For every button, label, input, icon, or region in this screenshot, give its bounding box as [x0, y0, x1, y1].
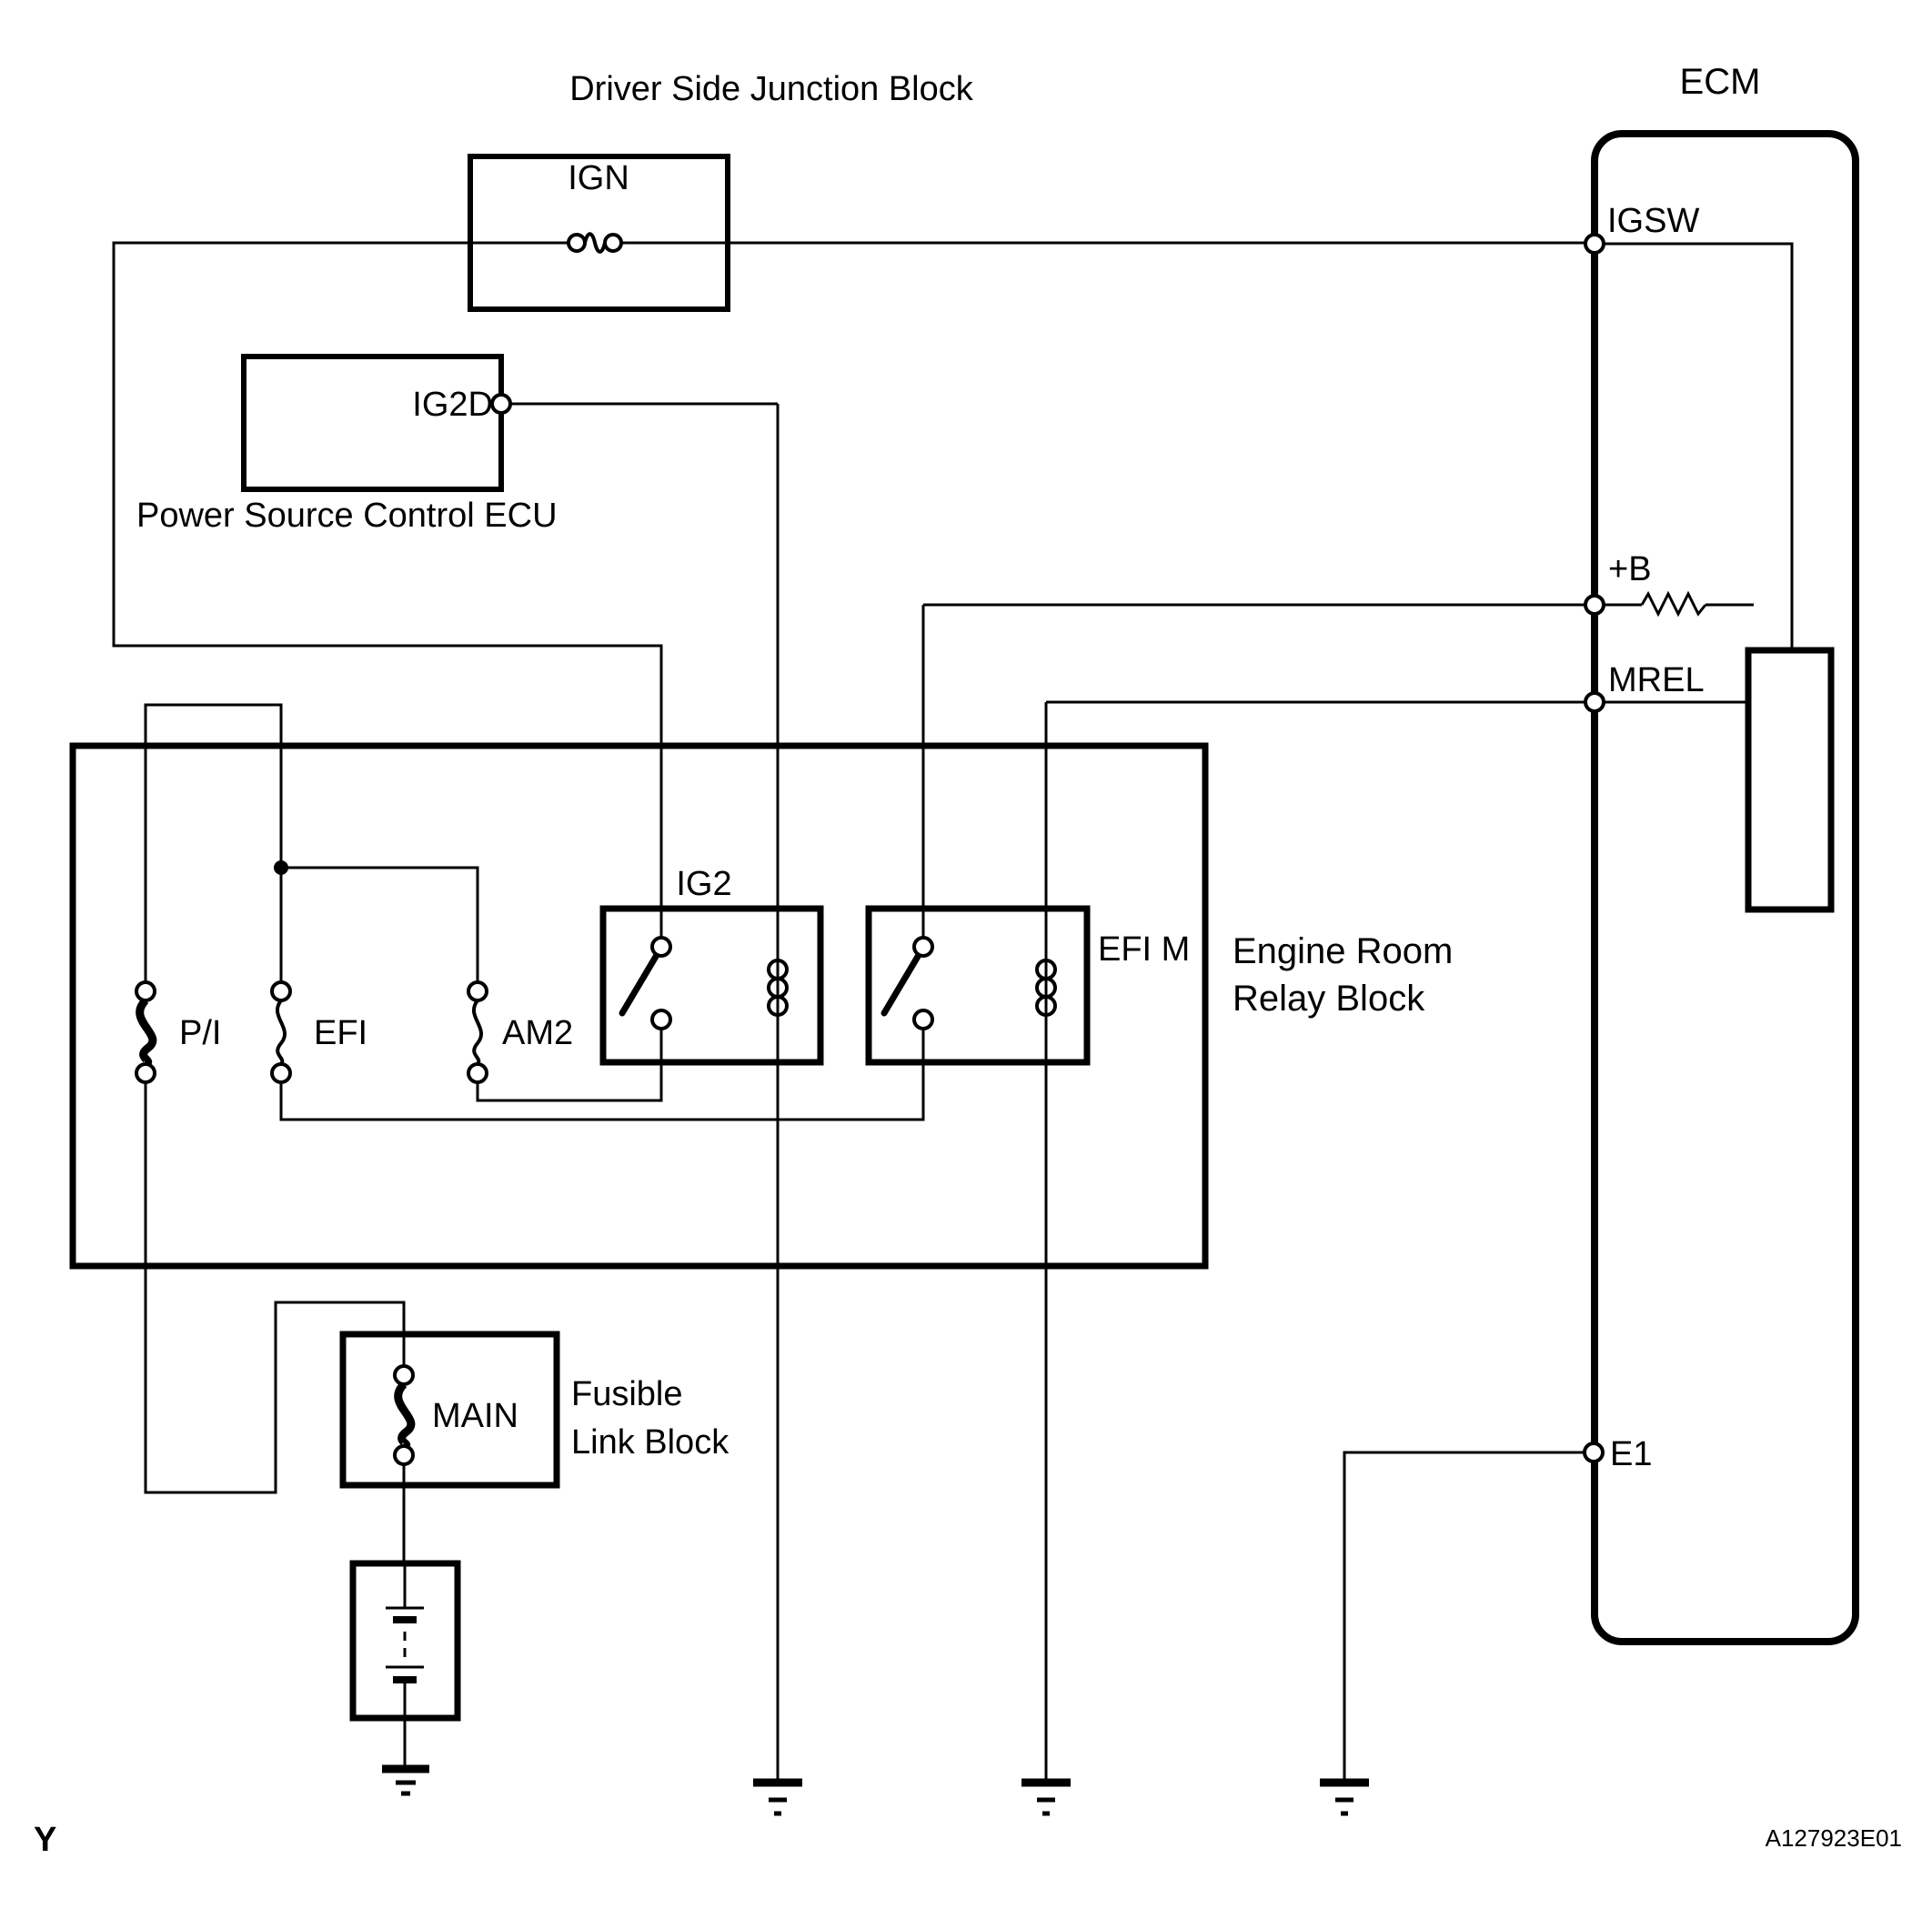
power-source-ecu-caption: Power Source Control ECU — [136, 498, 558, 533]
ig2-relay-label: IG2 — [676, 867, 731, 901]
e1-terminal-label: E1 — [1610, 1437, 1652, 1472]
ig2-coil-ground-icon — [753, 1783, 802, 1814]
diagram-canvas — [0, 0, 1932, 1919]
plus-b-terminal-label: +B — [1608, 552, 1652, 587]
junction-block-title: Driver Side Junction Block — [569, 72, 973, 106]
efi-fuse-label: EFI — [314, 1016, 367, 1050]
efi-m-switch-contact-bottom — [914, 1010, 932, 1029]
main-fusible-link-icon — [398, 1384, 411, 1446]
main-fuse-bottom — [395, 1446, 413, 1464]
efi-m-coil-ground-icon — [1021, 1783, 1071, 1814]
am2-fuse-label: AM2 — [502, 1016, 573, 1050]
wiring-diagram: Driver Side Junction Block ECM IGN IGSW … — [0, 0, 1932, 1919]
wire-node-to-am2 — [281, 868, 478, 982]
engine-room-caption-line1: Engine Room — [1233, 933, 1453, 970]
ecm-internal-box — [1748, 650, 1831, 909]
igsw-terminal — [1585, 235, 1604, 253]
junction-dot — [274, 860, 288, 875]
efi-fuse-bottom — [272, 1064, 290, 1082]
pi-fusible-link-icon — [140, 1000, 153, 1064]
pi-fuse-bottom — [136, 1064, 155, 1082]
pi-fuse-top — [136, 982, 155, 1000]
wires — [114, 243, 1792, 1783]
plus-b-terminal — [1585, 596, 1604, 614]
e1-ground-icon — [1320, 1783, 1369, 1814]
efi-m-relay-switch — [884, 955, 919, 1013]
igsw-terminal-label: IGSW — [1607, 204, 1699, 238]
ig2d-terminal — [492, 395, 510, 413]
ecm-title: ECM — [1680, 64, 1761, 100]
fusible-link-caption-line2: Link Block — [571, 1425, 729, 1460]
ig2-switch-arm — [622, 955, 657, 1013]
ig2d-terminal-label: IG2D — [412, 387, 493, 422]
efi-fuse-top — [272, 982, 290, 1000]
ign-fuse-terminal-left — [569, 235, 585, 251]
battery-ground-icon — [382, 1769, 429, 1793]
wire-e1-to-ground — [1344, 1452, 1585, 1783]
resistor-icon — [1642, 594, 1706, 614]
engine-room-caption-line2: Relay Block — [1233, 980, 1424, 1017]
ig2-switch-contact-top — [652, 938, 670, 956]
page-marker: Y — [34, 1823, 56, 1857]
wire-igsw-internal — [1604, 244, 1792, 650]
terminal-circles — [136, 235, 1604, 1464]
drawing-code: A127923E01 — [1766, 1826, 1902, 1850]
wire-ign-to-ig2-switch — [114, 243, 661, 938]
am2-fuse-top — [468, 982, 487, 1000]
e1-terminal — [1585, 1443, 1603, 1462]
ig2-switch-contact-bottom — [652, 1010, 670, 1029]
ign-fuse-terminal-right — [605, 235, 621, 251]
ecm-outline — [1595, 134, 1856, 1642]
efi-m-switch-contact-top — [914, 938, 932, 956]
main-fuse-label: MAIN — [432, 1399, 518, 1433]
mrel-terminal-label: MREL — [1608, 663, 1705, 698]
efi-m-switch-arm — [884, 955, 919, 1013]
efi-fuse-icon — [277, 1000, 285, 1064]
am2-fuse-icon — [474, 1000, 481, 1064]
mrel-terminal — [1585, 693, 1604, 711]
efi-m-relay-label: EFI M — [1098, 932, 1190, 967]
ign-fuse-label: IGN — [568, 161, 629, 196]
battery-cells-icon — [386, 1608, 424, 1680]
ig2-relay-switch — [622, 955, 657, 1013]
ign-fuse-icon — [585, 234, 605, 252]
fusible-link-caption-line1: Fusible — [571, 1377, 683, 1412]
pi-fuse-label: P/I — [179, 1016, 221, 1050]
main-fuse-top — [395, 1366, 413, 1384]
wire-pi-to-main — [146, 1082, 404, 1492]
am2-fuse-bottom — [468, 1064, 487, 1082]
